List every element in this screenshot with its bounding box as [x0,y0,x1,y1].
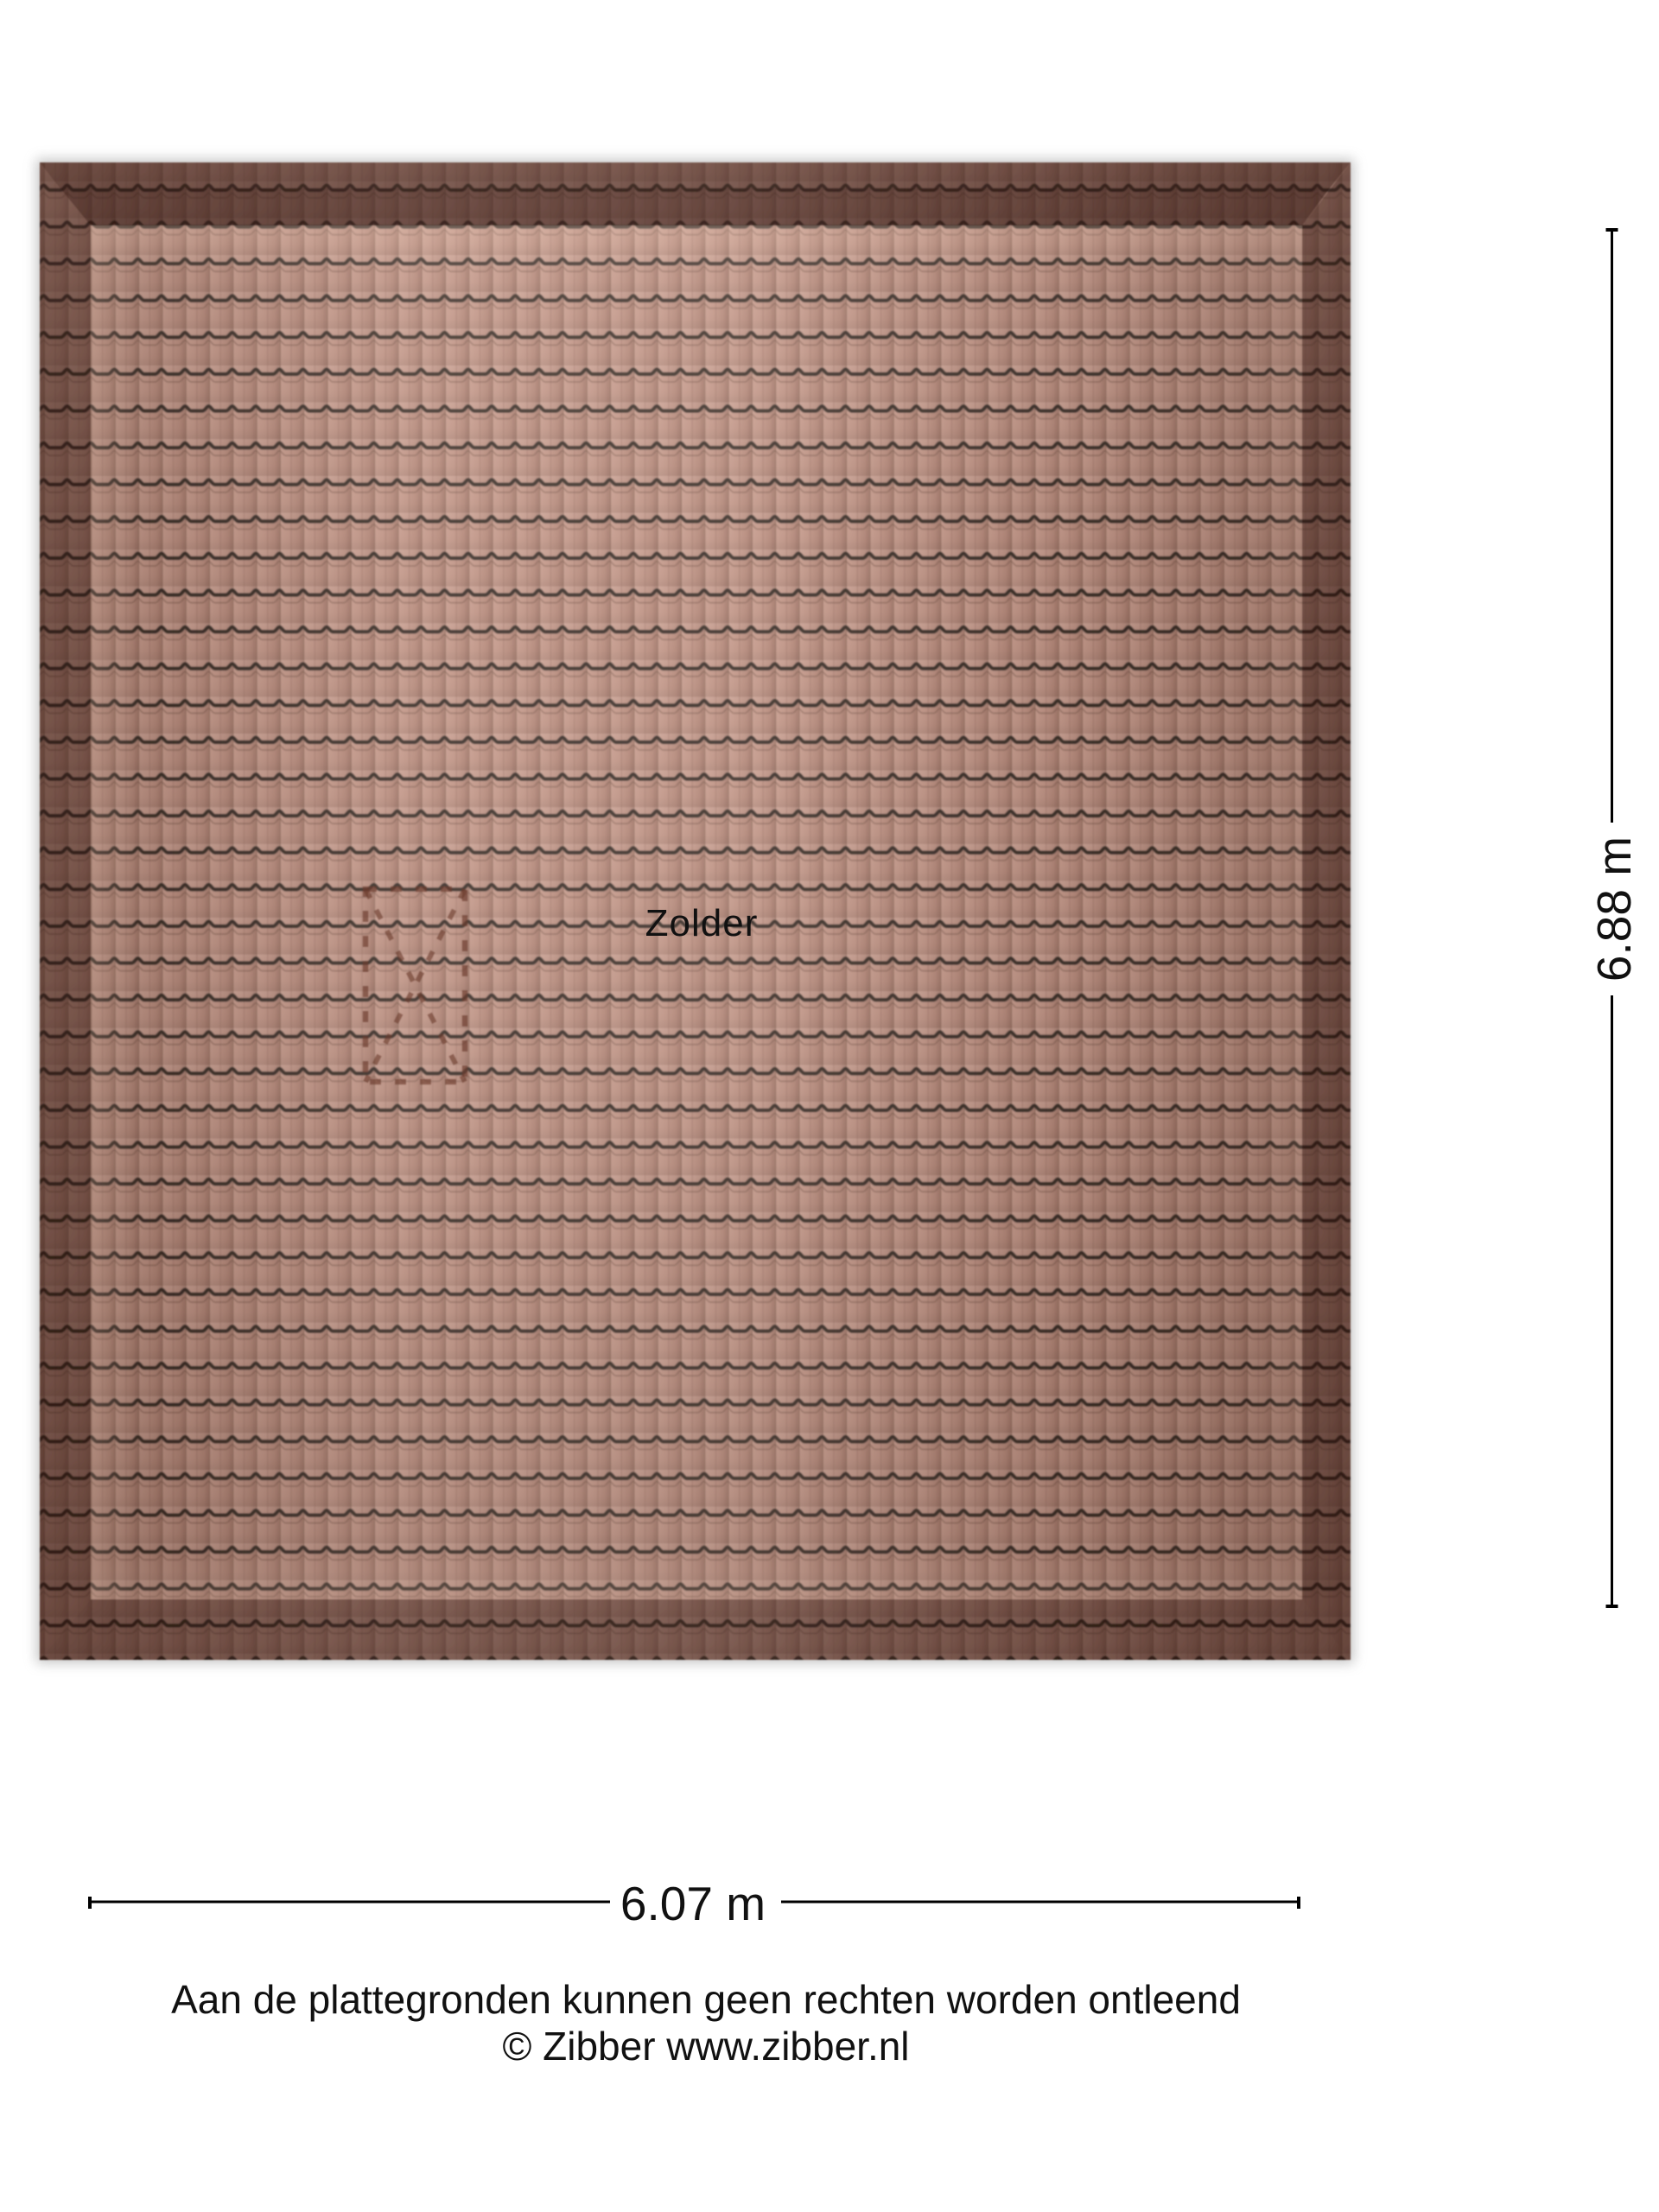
svg-text:6.07 m: 6.07 m [620,1877,766,1930]
svg-text:© Zibber www.zibber.nl: © Zibber www.zibber.nl [502,2024,909,2069]
svg-text:Aan de plattegronden kunnen ge: Aan de plattegronden kunnen geen rechten… [171,1977,1241,2022]
svg-text:Zolder: Zolder [645,902,759,944]
svg-text:6.88 m: 6.88 m [1587,836,1641,982]
